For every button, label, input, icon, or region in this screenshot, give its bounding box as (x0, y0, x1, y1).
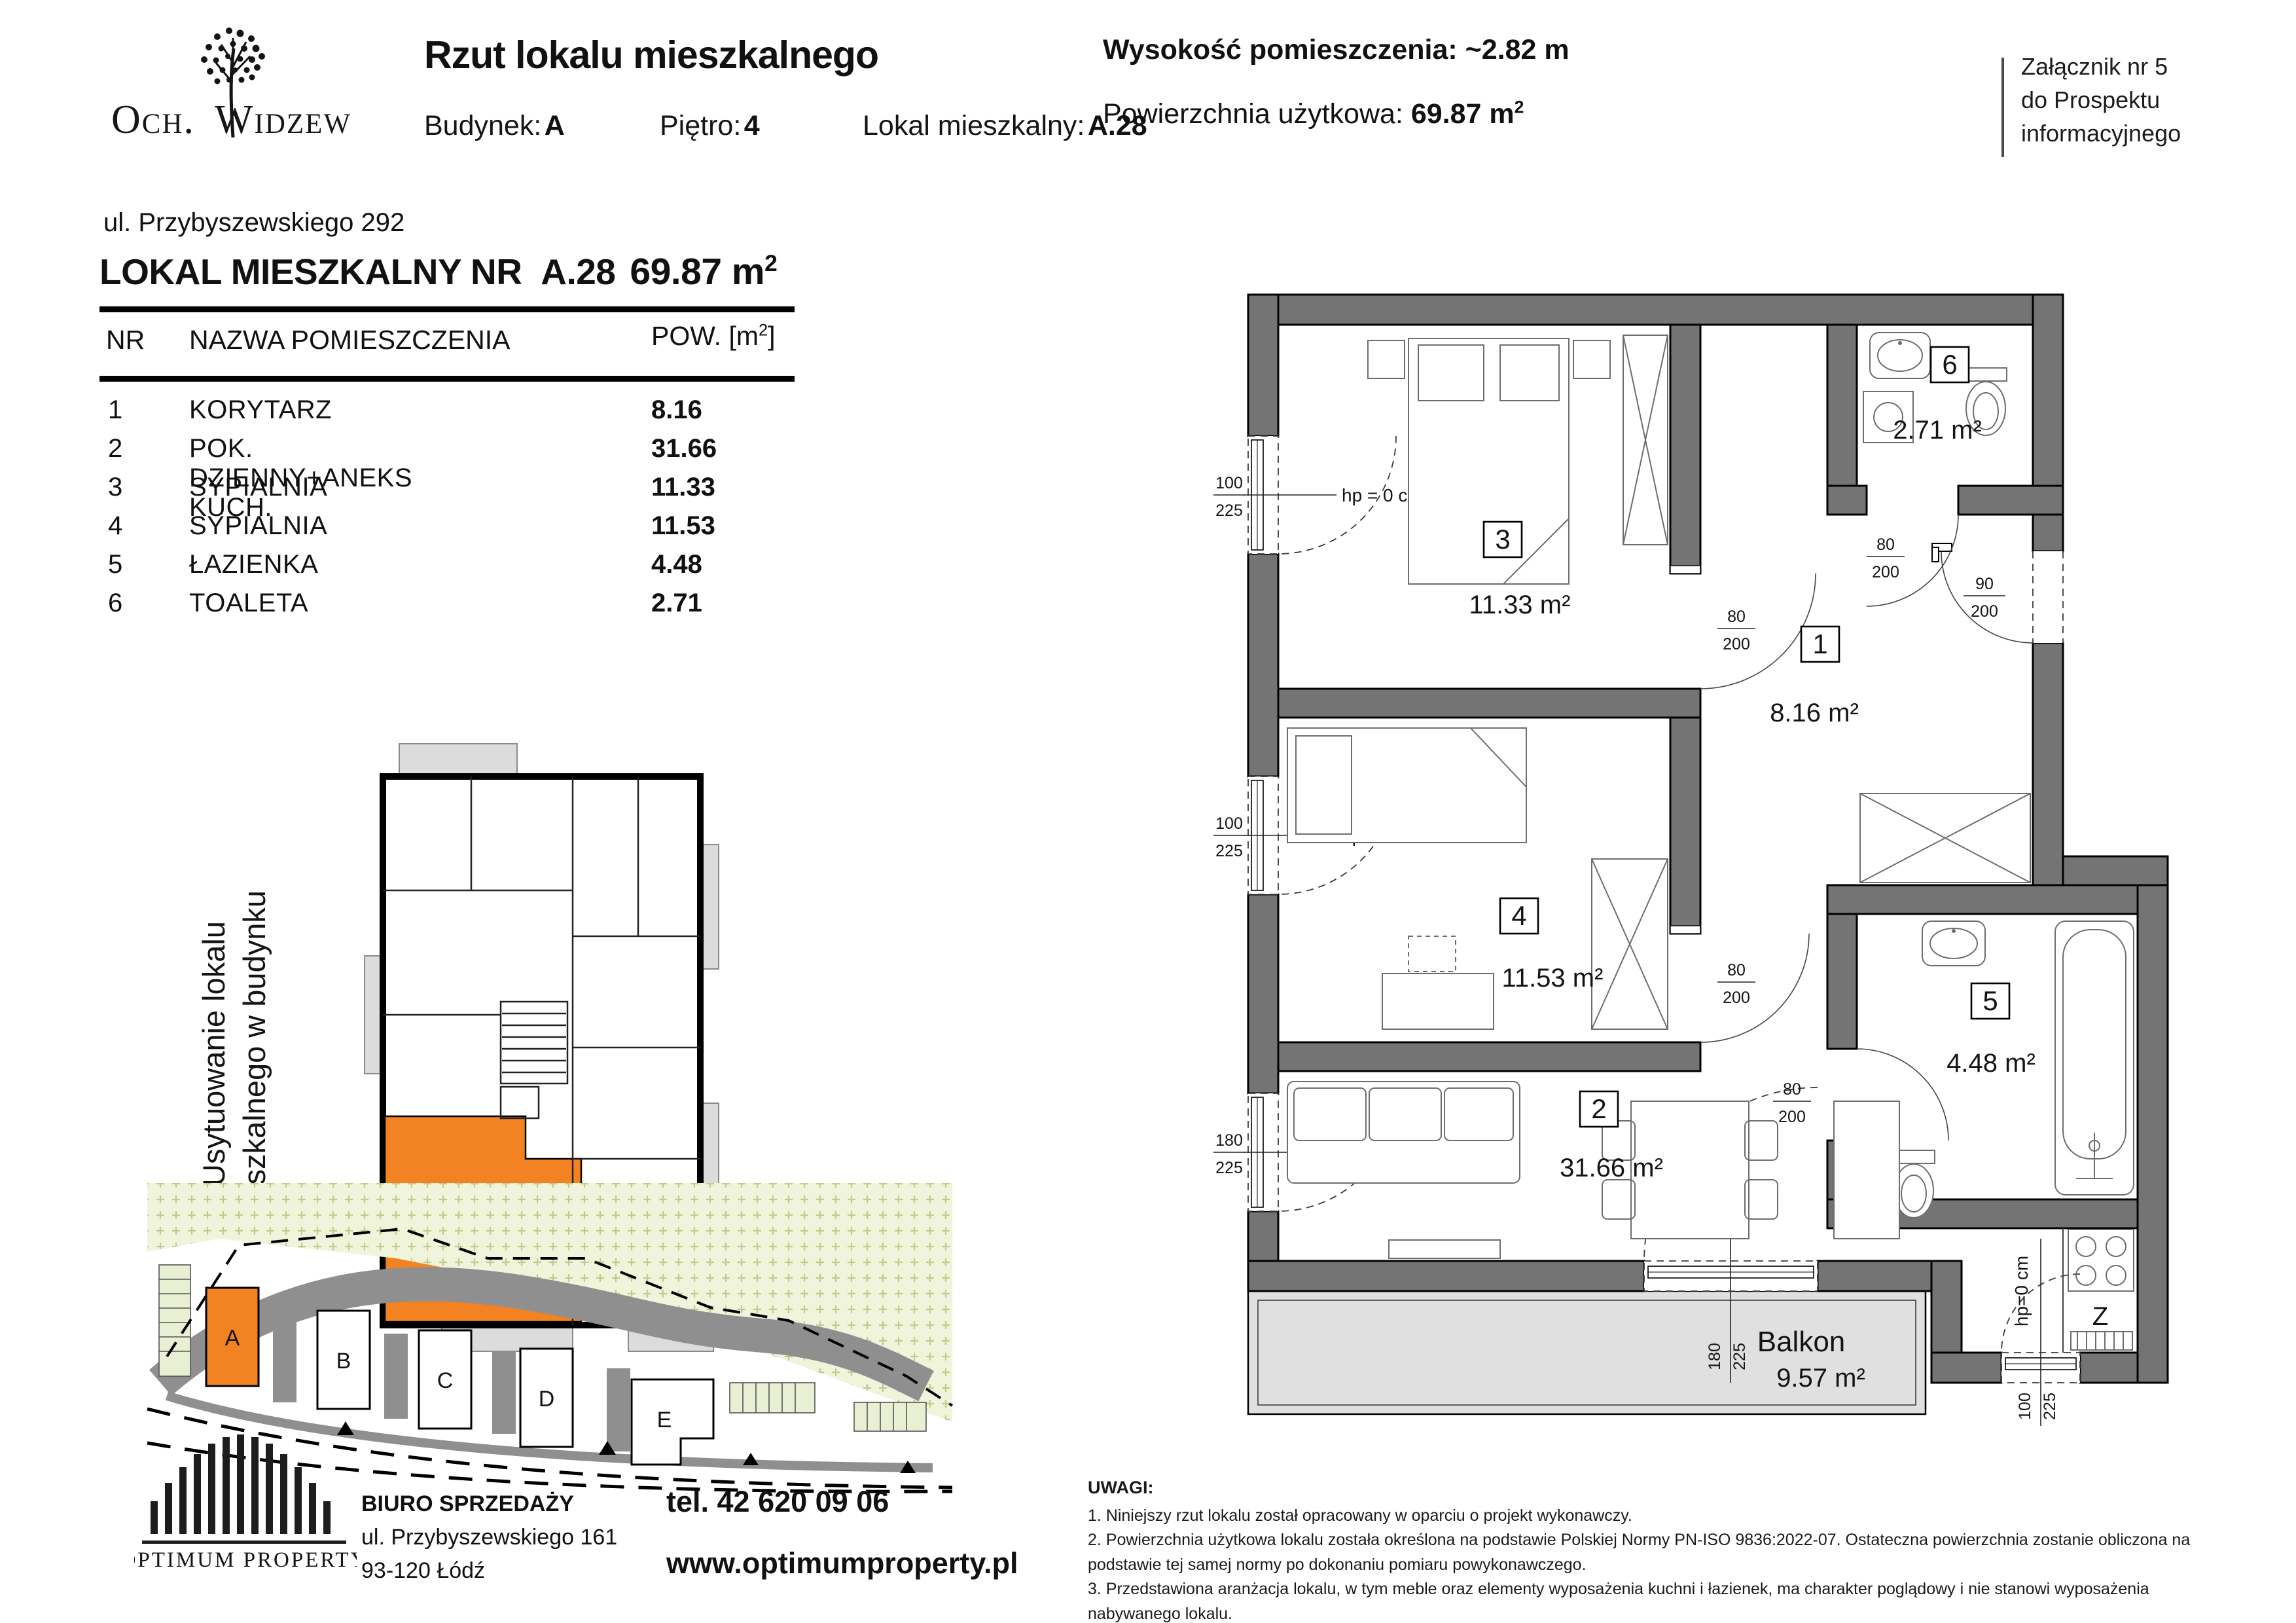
attachment-divider (2001, 58, 2004, 157)
balcony: Balkon 9.57 m² (1248, 1291, 1926, 1414)
attachment-note: Załącznik nr 5 do Prospektu informacyjne… (2021, 50, 2181, 150)
contact-block: tel. 42 620 09 06 www.optimumproperty.pl (666, 1485, 1018, 1580)
table-row-name: ŁAZIENKA (189, 550, 318, 579)
sink-icon (1870, 333, 1930, 378)
table-row-area: 11.33 (651, 473, 715, 502)
kitchen-island-icon (1834, 1101, 1899, 1239)
bed-single-icon (1287, 728, 1526, 843)
page-title: Rzut lokalu mieszkalnego (424, 33, 878, 77)
bathtub-icon (2055, 921, 2134, 1195)
table-row-nr: 1 (108, 395, 122, 425)
table-row-area: 11.53 (651, 511, 715, 541)
table-row-nr: 3 (108, 473, 122, 502)
wardrobe-icon (1860, 793, 2030, 883)
usable-area-value: 69.87 m2 (1411, 98, 1524, 130)
unit-label: Lokal mieszkalny: (863, 110, 1085, 141)
building-field: Budynek: A (424, 110, 565, 142)
table-row-area: 4.48 (651, 550, 702, 579)
svg-text:200: 200 (1723, 989, 1750, 1007)
building-label-a: A (225, 1326, 240, 1351)
unit-title-prefix: LOKAL MIESZKALNY NR (99, 251, 522, 292)
svg-text:80: 80 (1876, 536, 1895, 554)
usable-area-field: Powierzchnia użytkowa: 69.87 m2 (1103, 98, 1524, 130)
svg-text:100: 100 (1215, 474, 1243, 492)
svg-text:180: 180 (1215, 1131, 1243, 1150)
table-row-area: 8.16 (651, 395, 702, 425)
room-area: 11.33 m² (1469, 591, 1571, 619)
column-header-area: POW. [m2] (651, 321, 776, 352)
table-header-rule (99, 376, 795, 382)
website-link[interactable]: www.optimumproperty.pl (666, 1546, 1018, 1580)
building-label-c: C (437, 1368, 454, 1393)
svg-text:225: 225 (1215, 842, 1243, 860)
svg-text:100: 100 (1215, 814, 1243, 833)
svg-text:225: 225 (1731, 1343, 1749, 1370)
unit-title-number: A.28 (541, 251, 615, 292)
svg-text:80: 80 (1727, 608, 1746, 626)
room-number: 4 (1511, 900, 1526, 931)
svg-text:100: 100 (2016, 1393, 2034, 1420)
building-label-e: E (657, 1408, 672, 1432)
table-row-nr: 2 (108, 434, 122, 464)
svg-text:225: 225 (1215, 501, 1243, 520)
table-row-name: TOALETA (189, 589, 308, 618)
floor-plan: Balkon 9.57 m² (1212, 270, 2174, 1429)
brand-name: OPTIMUM PROPERTY (134, 1548, 357, 1572)
floor-label: Piętro: (660, 110, 741, 141)
room-area: 11.53 m² (1502, 964, 1604, 993)
entry-door: 90 200 (1932, 543, 2063, 643)
building-label: Budynek: (424, 110, 541, 141)
note-item: 3. Przedstawiona aranżacja lokalu, w tym… (1088, 1577, 2194, 1623)
sales-office-title: BIURO SPRZEDAŻY (361, 1487, 617, 1521)
sales-office-block: BIURO SPRZEDAŻY ul. Przybyszewskiego 161… (361, 1487, 617, 1588)
note-item: 2. Powierzchnia użytkowa lokalu została … (1088, 1528, 2194, 1577)
hp-label-vertical: hp=0 cm (2011, 1256, 2032, 1326)
svg-text:80: 80 (1727, 961, 1746, 979)
desk-icon (1382, 936, 1494, 1029)
note-item: 1. Niniejszy rzut lokalu został opracowa… (1088, 1504, 2194, 1529)
building-value: A (545, 110, 565, 141)
column-header-name: NAZWA POMIESZCZENIA (189, 325, 511, 356)
room-area: 31.66 m² (1560, 1154, 1663, 1182)
table-row-nr: 6 (108, 589, 122, 618)
sofa-icon (1287, 1082, 1520, 1183)
svg-text:180: 180 (1706, 1343, 1724, 1370)
svg-text:225: 225 (1215, 1159, 1243, 1177)
room-number: 2 (1591, 1093, 1606, 1124)
room-area: 4.48 m² (1946, 1049, 2036, 1078)
tree-icon (191, 22, 278, 139)
logo-text-left: Och. (111, 98, 195, 142)
street-address: ul. Przybyszewskiego 292 (103, 208, 404, 238)
balcony-label: Balkon (1757, 1326, 1846, 1358)
kitchen-counter: Z (2063, 1228, 2134, 1353)
logo-building-bars (151, 1434, 331, 1534)
window-room3: 100 225 hp = 0 cm (1213, 436, 1423, 554)
building-label-b: B (336, 1349, 351, 1374)
wardrobe-icon (1623, 335, 1668, 545)
svg-text:90: 90 (1975, 575, 1994, 593)
floor-field: Piętro: 4 (660, 110, 760, 142)
attachment-line: do Prospektu (2021, 83, 2181, 117)
room-height-label: Wysokość pomieszczenia: (1103, 34, 1458, 65)
room-area: 8.16 m² (1770, 699, 1859, 727)
attachment-line: informacyjnego (2021, 117, 2181, 150)
table-row-name: SYPIALNIA (189, 473, 327, 502)
building-label-d: D (539, 1387, 555, 1412)
unit-title: LOKAL MIESZKALNY NR A.2869.87 m2 (99, 250, 777, 293)
document-page: Och.Widzew Rzut lokalu mieszkalnego Budy… (0, 0, 2296, 1623)
room-area: 2.71 m² (1893, 416, 1982, 445)
sink-icon (1922, 921, 1985, 966)
unit-title-area: 69.87 m2 (630, 251, 777, 293)
table-row-nr: 5 (108, 550, 122, 579)
room-number: 3 (1495, 524, 1510, 555)
kitchen-sink-label: Z (2092, 1302, 2108, 1331)
room-number: 1 (1812, 629, 1827, 659)
wardrobe-icon (1592, 859, 1668, 1029)
balcony-area: 9.57 m² (1776, 1364, 1865, 1393)
column-header-nr: NR (106, 325, 145, 356)
optimum-property-logo: OPTIMUM PROPERTY (134, 1431, 357, 1578)
phone-number: tel. 42 620 09 06 (666, 1485, 1018, 1519)
svg-text:225: 225 (2041, 1393, 2059, 1420)
notes-block: UWAGI: 1. Niniejszy rzut lokalu został o… (1088, 1474, 2194, 1623)
usable-area-label: Powierzchnia użytkowa: (1103, 98, 1403, 130)
floor-value: 4 (744, 110, 760, 141)
svg-text:200: 200 (1872, 563, 1899, 581)
table-row-area: 2.71 (651, 589, 702, 618)
notes-title: UWAGI: (1088, 1474, 2194, 1501)
room-height-value: ~2.82 m (1465, 34, 1570, 65)
table-top-rule (99, 306, 795, 312)
table-row-name: SYPIALNIA (189, 511, 327, 541)
room-height-field: Wysokość pomieszczenia: ~2.82 m (1103, 34, 1570, 66)
tv-sideboard-icon (1389, 1240, 1500, 1258)
svg-text:200: 200 (1723, 635, 1750, 653)
room-number: 6 (1942, 349, 1957, 380)
sales-office-address1: ul. Przybyszewskiego 161 (361, 1521, 617, 1554)
table-row-area: 31.66 (651, 434, 717, 464)
sales-office-address2: 93-120 Łódź (361, 1554, 617, 1588)
svg-text:200: 200 (1971, 602, 1998, 621)
attachment-line: Załącznik nr 5 (2021, 50, 2181, 83)
svg-text:200: 200 (1778, 1108, 1806, 1126)
room-number: 5 (1982, 985, 1998, 1016)
table-row-name: KORYTARZ (189, 395, 332, 425)
table-row-nr: 4 (108, 511, 122, 541)
svg-text:80: 80 (1783, 1080, 1801, 1099)
balcony-shape (399, 744, 517, 776)
